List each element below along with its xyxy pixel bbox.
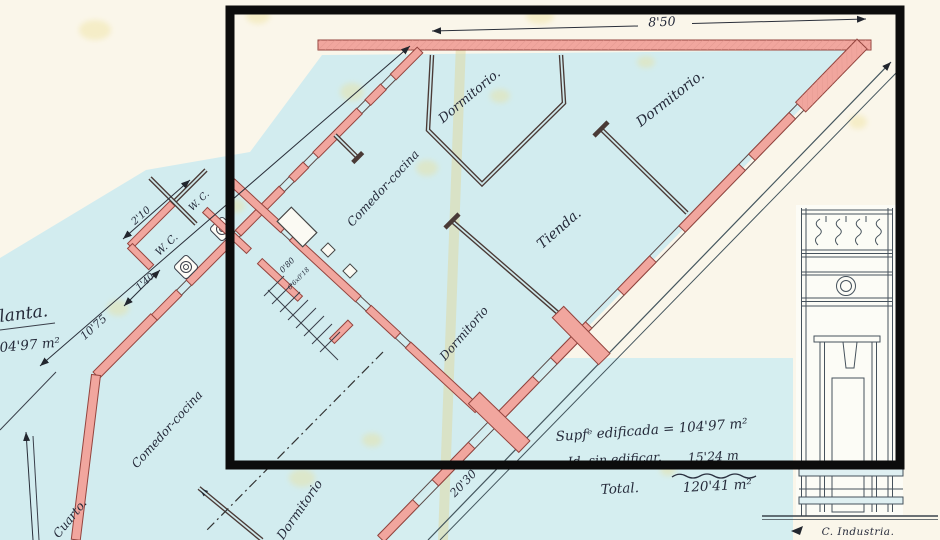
wall-top	[318, 40, 871, 50]
dimension-top-width: 8'50	[648, 14, 676, 30]
street-name-label: C. Industria.	[822, 526, 895, 538]
floor-plan-scan: C. Industria. 20'30	[0, 0, 940, 540]
total-area-label: Total.	[600, 480, 639, 498]
plan-drawing: C. Industria. 20'30	[0, 0, 940, 540]
